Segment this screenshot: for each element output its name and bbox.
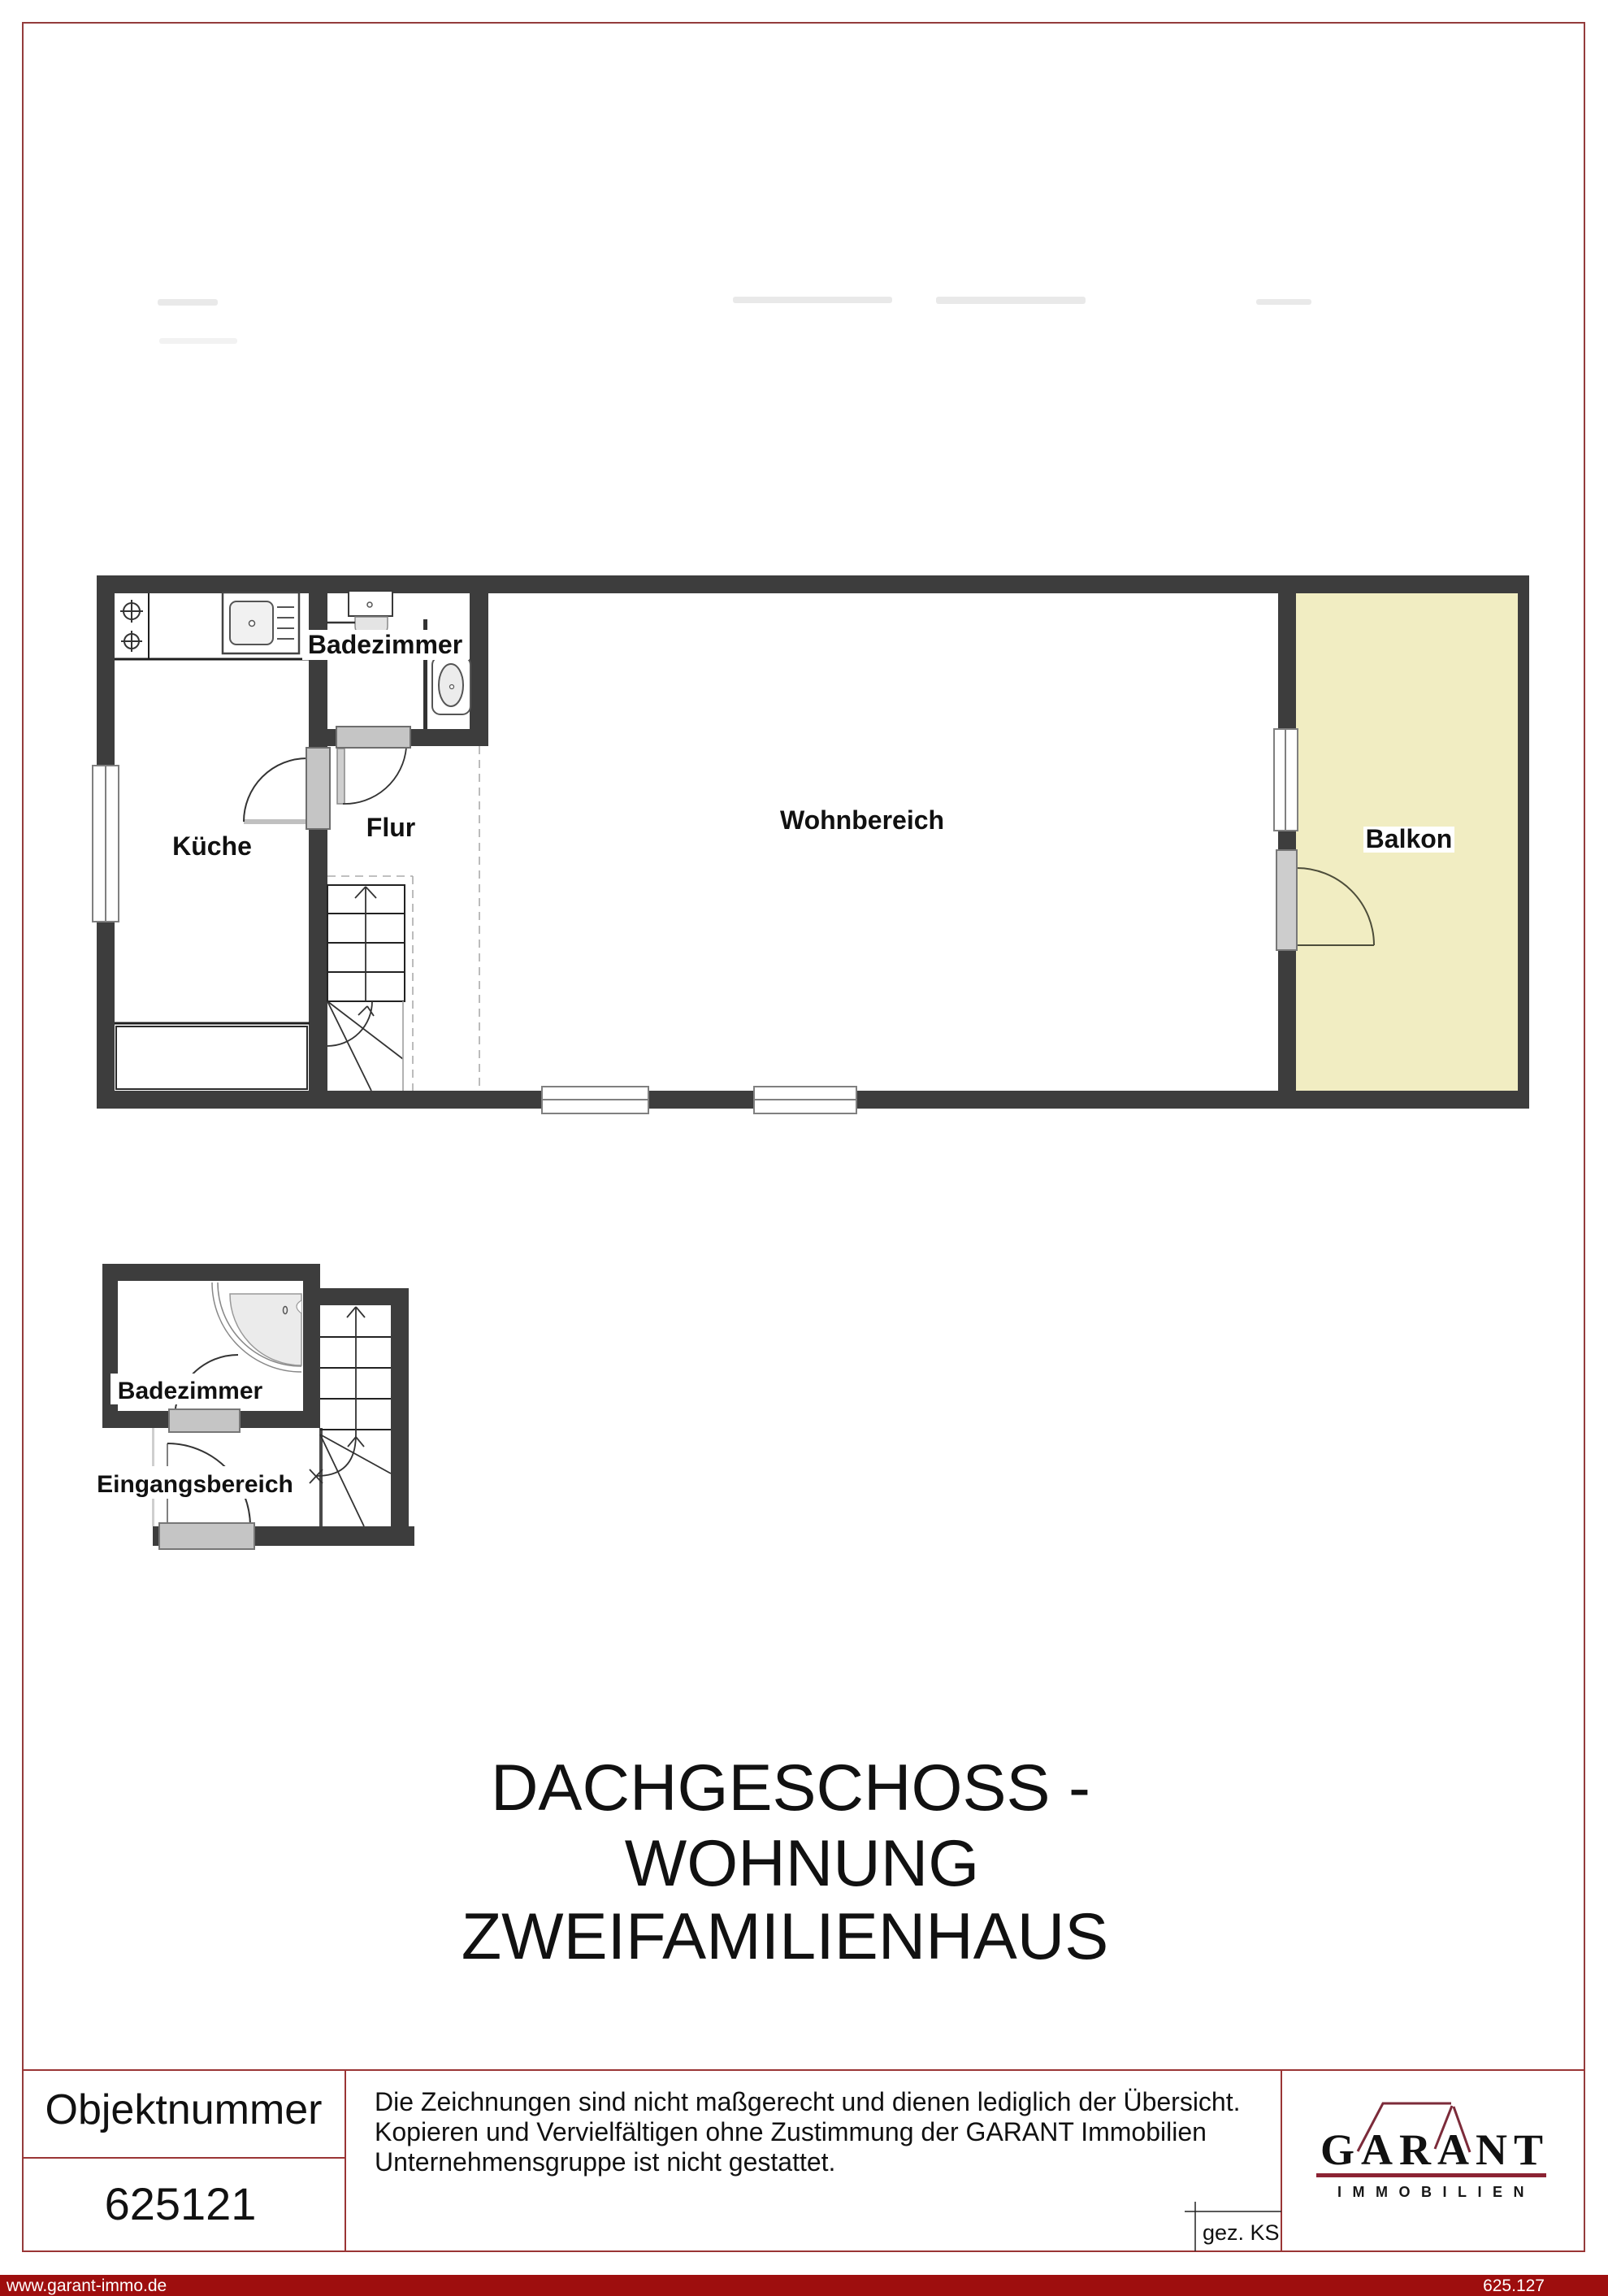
- svg-text:Unternehmensgruppe ist nicht g: Unternehmensgruppe ist nicht gestattet.: [375, 2147, 835, 2177]
- svg-text:DACHGESCHOSS -: DACHGESCHOSS -: [491, 1751, 1090, 1825]
- svg-text:Kopieren und Vervielfältigen o: Kopieren und Vervielfältigen ohne Zustim…: [375, 2117, 1207, 2146]
- svg-text:Wohnbereich: Wohnbereich: [780, 805, 944, 835]
- svg-text:Badezimmer: Badezimmer: [308, 630, 462, 659]
- svg-text:Flur: Flur: [366, 813, 415, 842]
- svg-text:Badezimmer: Badezimmer: [118, 1378, 263, 1404]
- svg-text:gez. KS: gez. KS: [1203, 2220, 1280, 2245]
- svg-text:www.garant-immo.de: www.garant-immo.de: [6, 2276, 167, 2295]
- svg-text:Küche: Küche: [172, 831, 252, 861]
- svg-text:ZWEIFAMILIENHAUS: ZWEIFAMILIENHAUS: [462, 1900, 1109, 1973]
- svg-text:Objektnummer: Objektnummer: [46, 2086, 323, 2133]
- svg-text:IMMOBILIEN: IMMOBILIEN: [1337, 2184, 1535, 2200]
- svg-text:625.127: 625.127: [1483, 2276, 1545, 2295]
- svg-text:Balkon: Balkon: [1366, 824, 1453, 853]
- svg-text:Eingangsbereich: Eingangsbereich: [97, 1471, 293, 1498]
- svg-text:WOHNUNG: WOHNUNG: [625, 1827, 979, 1900]
- svg-text:625121: 625121: [105, 2178, 257, 2229]
- svg-text:Die Zeichnungen sind nicht maß: Die Zeichnungen sind nicht maßgerecht un…: [375, 2087, 1241, 2116]
- svg-text:GARANT: GARANT: [1320, 2125, 1549, 2174]
